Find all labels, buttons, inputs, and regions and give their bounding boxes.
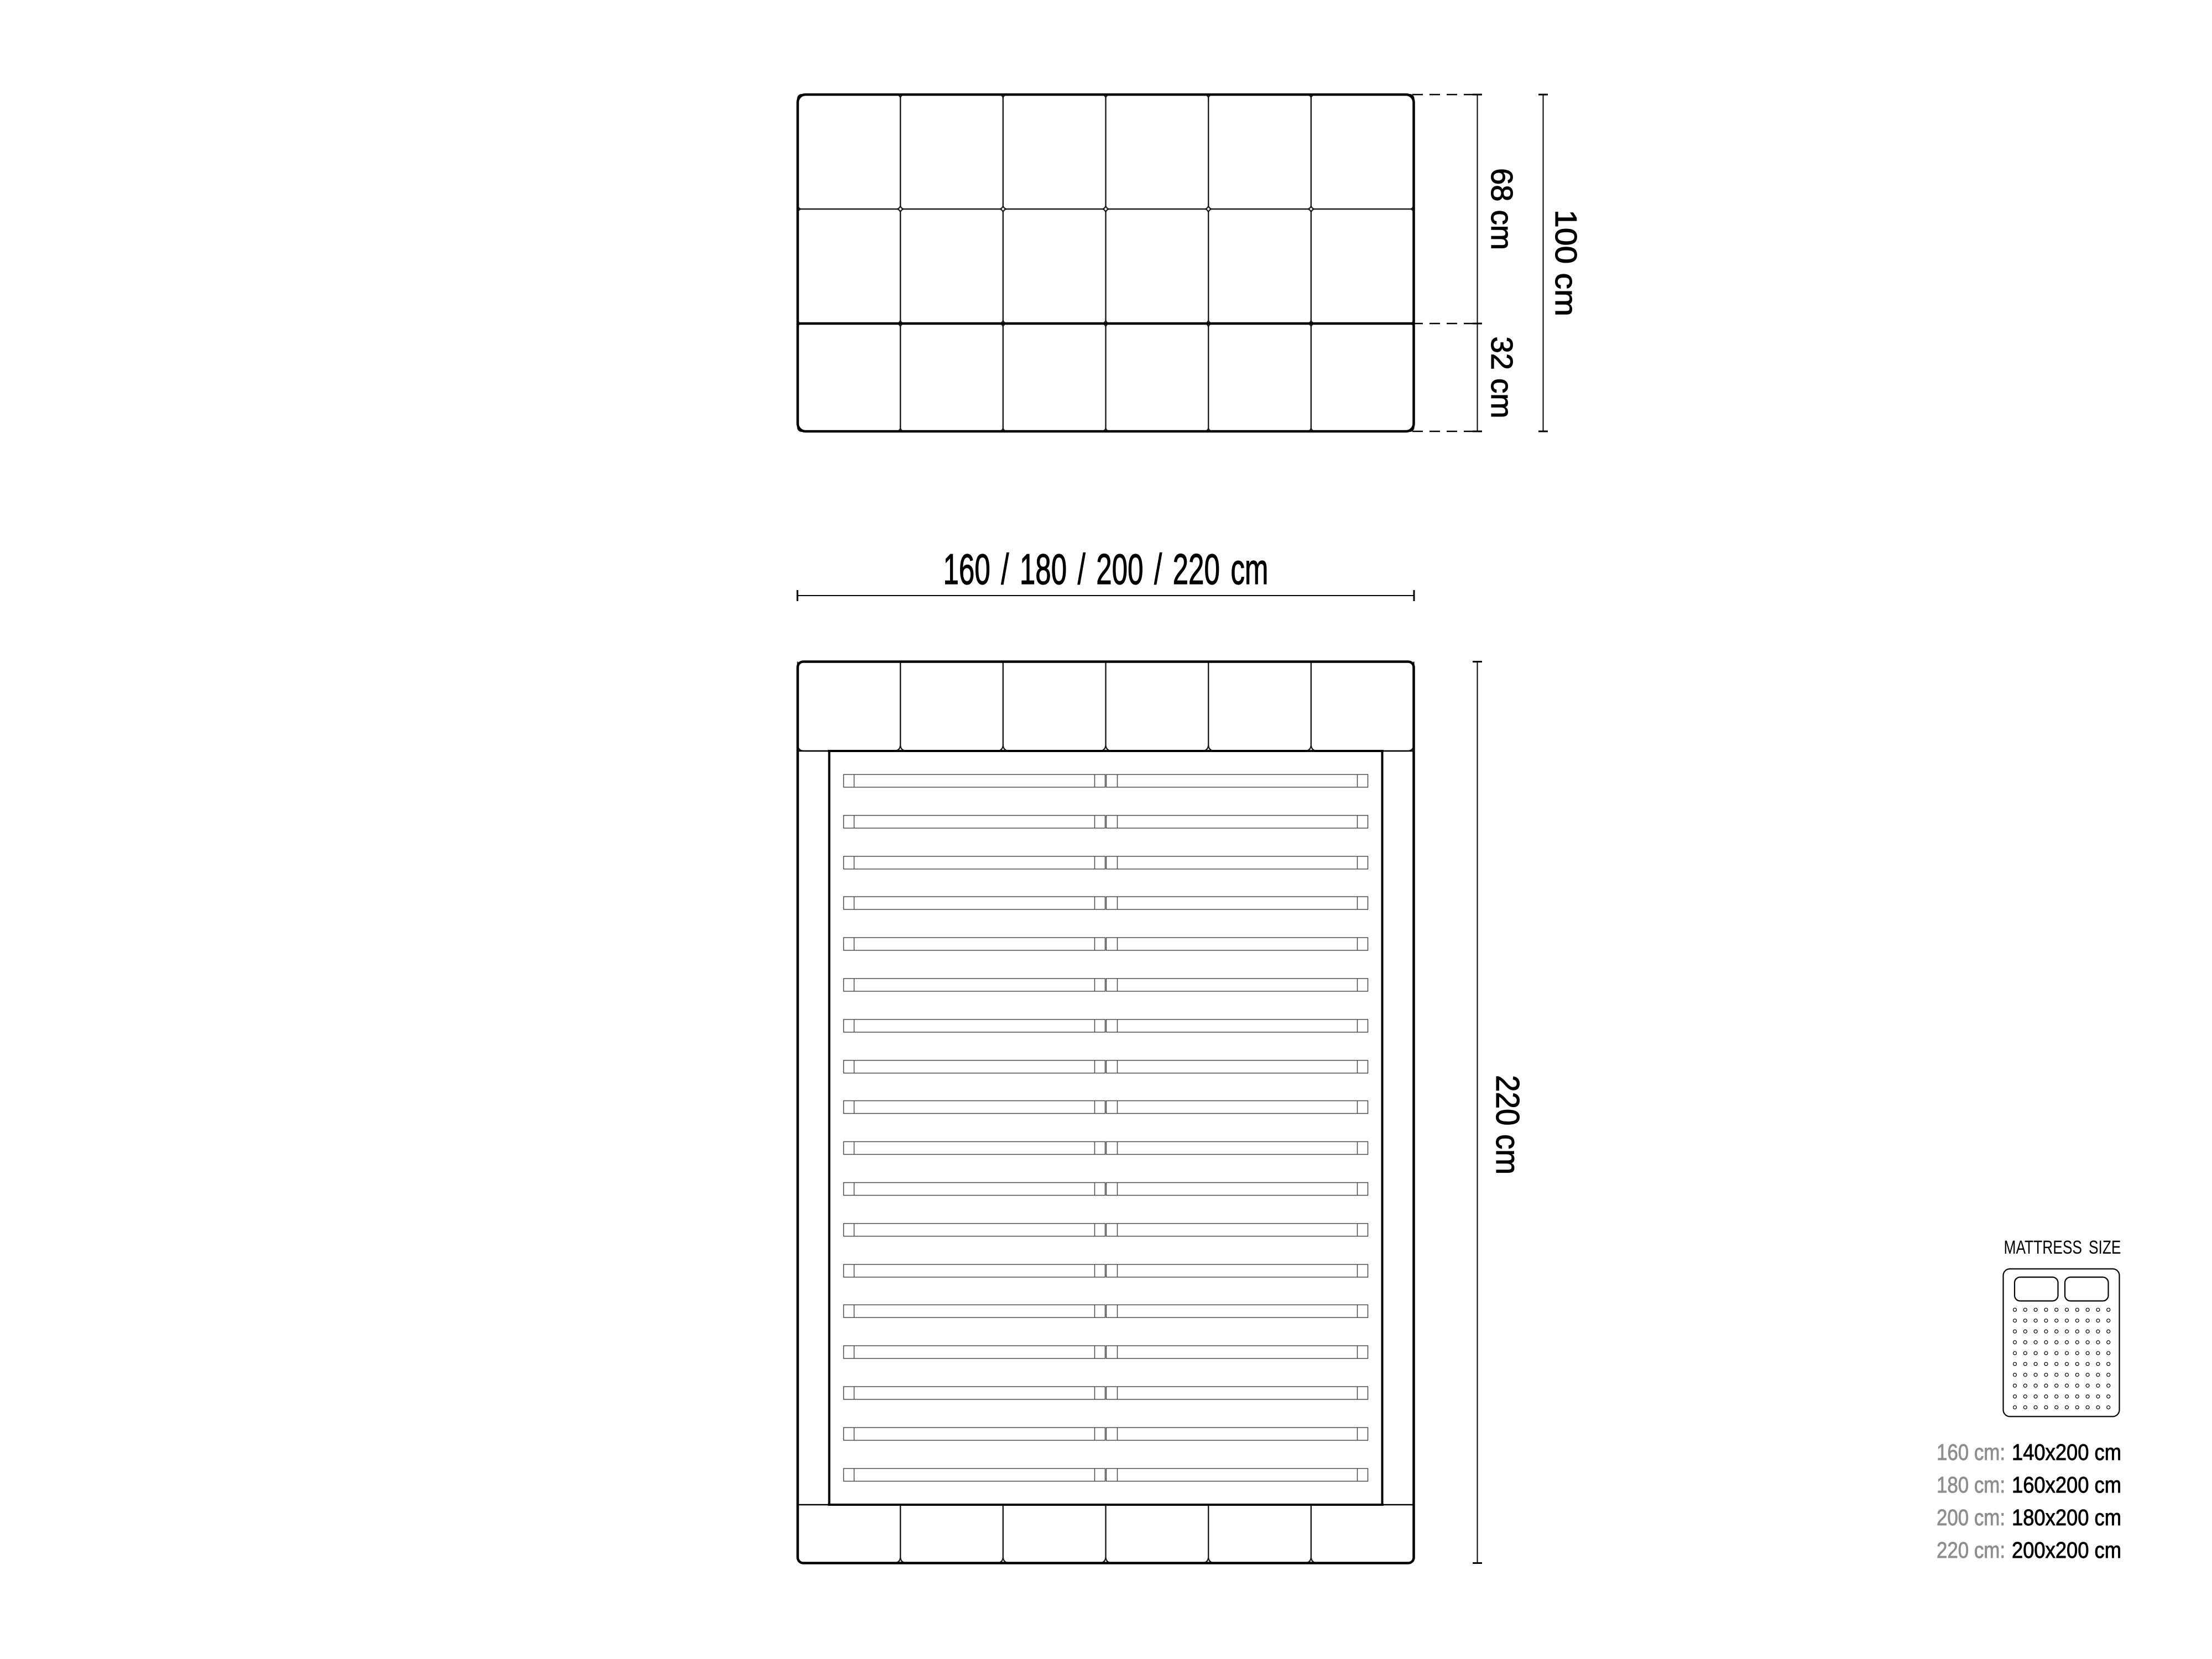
svg-text:140x200 cm: 140x200 cm: [2012, 1439, 2121, 1465]
svg-text:200 cm:: 200 cm:: [1937, 1505, 2005, 1530]
svg-text:160 / 180 / 200 / 220 cm: 160 / 180 / 200 / 220 cm: [943, 545, 1269, 593]
svg-text:100 cm: 100 cm: [1549, 210, 1583, 316]
svg-text:180x200 cm: 180x200 cm: [2012, 1505, 2121, 1530]
svg-text:68 cm: 68 cm: [1485, 168, 1519, 250]
svg-text:220 cm:: 220 cm:: [1937, 1537, 2005, 1563]
svg-text:180 cm:: 180 cm:: [1937, 1472, 2005, 1498]
svg-text:160 cm:: 160 cm:: [1937, 1439, 2005, 1465]
svg-text:200x200 cm: 200x200 cm: [2012, 1537, 2121, 1563]
svg-text:MATTRESS SIZE: MATTRESS SIZE: [2004, 1237, 2121, 1258]
svg-text:220 cm: 220 cm: [1489, 1075, 1526, 1175]
svg-text:160x200 cm: 160x200 cm: [2012, 1472, 2121, 1498]
svg-text:32 cm: 32 cm: [1485, 337, 1519, 419]
